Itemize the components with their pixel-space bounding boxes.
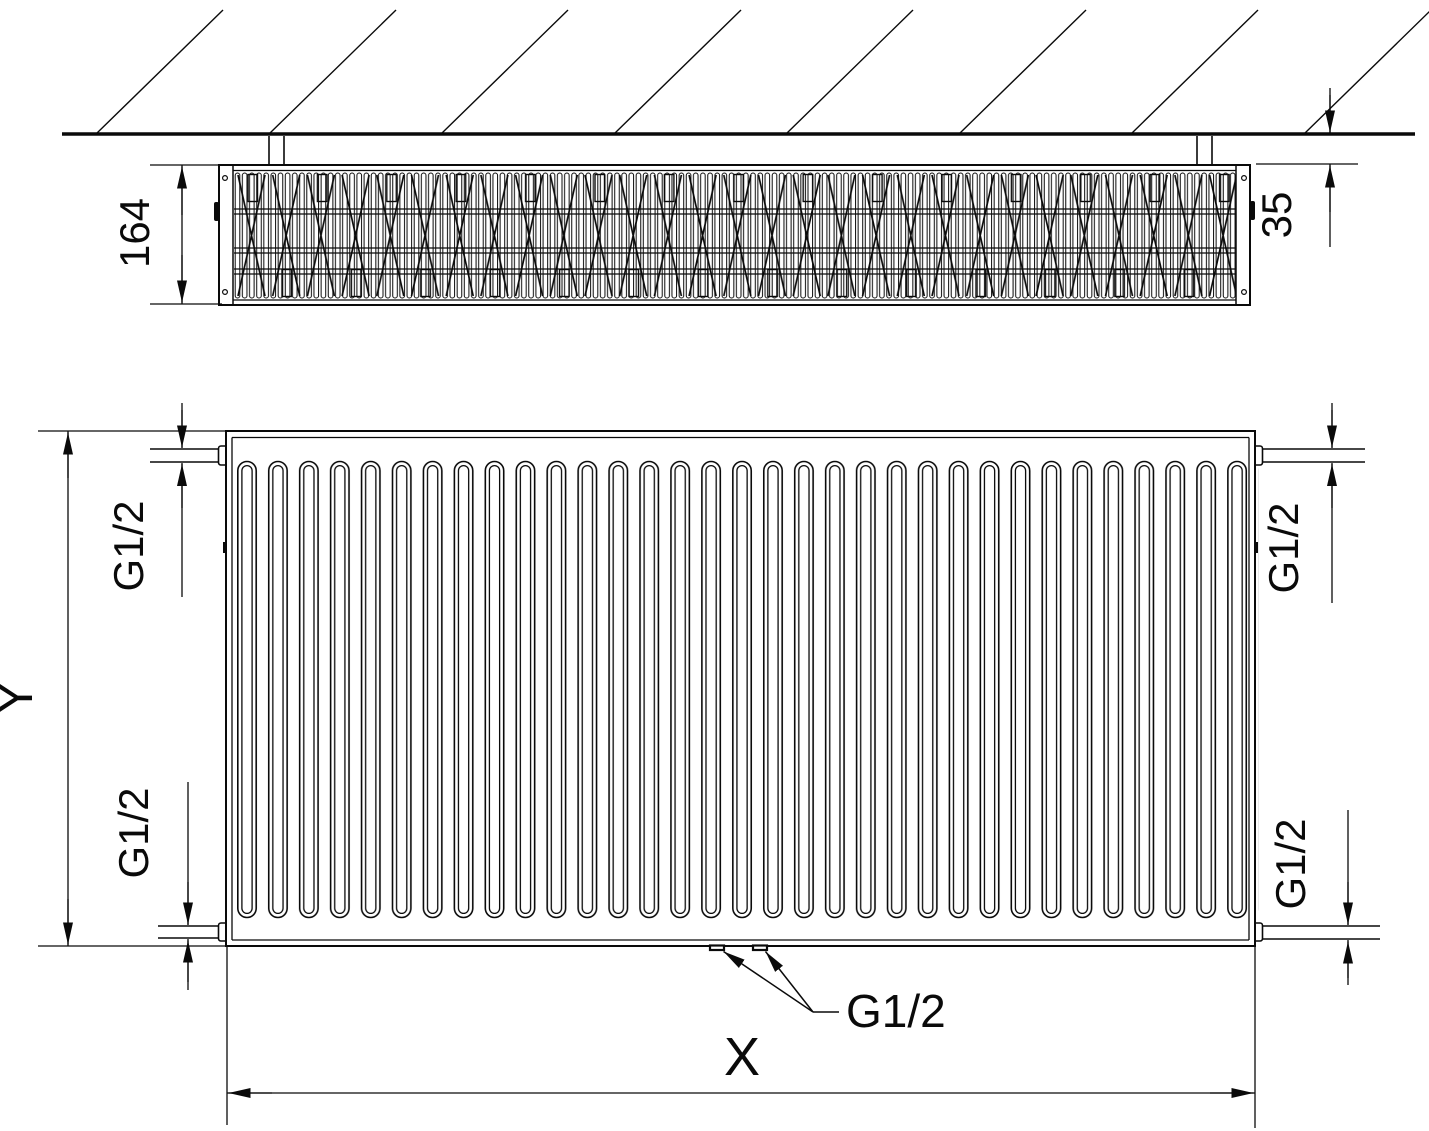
mounting-bracket-left [269, 136, 284, 165]
dim-label-164: 164 [111, 198, 158, 268]
radiator-top-view [214, 165, 1255, 305]
dim-label-conn-bottom-right: G1/2 [1267, 818, 1314, 909]
bottom-stub-1 [710, 946, 724, 951]
dim-label-width: X [724, 1027, 760, 1087]
screw-hole [1242, 290, 1247, 295]
groove-field [237, 460, 1258, 920]
pipe-stub-bottom-left [158, 923, 228, 941]
edge-tab-right [1254, 542, 1258, 553]
dim-label-conn-top-left: G1/2 [105, 500, 152, 591]
radiator-technical-drawing: 164 35 [0, 0, 1429, 1131]
dim-label-height: Y [0, 681, 43, 714]
dim-label-conn-bottom-left: G1/2 [110, 787, 157, 878]
pipe-stub-top-left [150, 446, 228, 465]
drawing-canvas: 164 35 [0, 0, 1429, 1131]
mounting-bracket-right [1197, 136, 1212, 165]
screw-hole [223, 290, 228, 295]
pipe-stub-top-right [1254, 446, 1366, 465]
dim-label-35: 35 [1253, 192, 1300, 239]
dim-depth-164 [150, 165, 222, 304]
edge-tab-left [223, 542, 227, 553]
dim-label-conn-bottom-center: G1/2 [846, 985, 946, 1037]
bottom-stub-2 [753, 946, 767, 951]
side-tab-left [214, 202, 219, 221]
screw-hole [223, 176, 228, 181]
radiator-front-view [150, 431, 1380, 950]
leader-bottom-connections [724, 952, 840, 1013]
wall-hatch [96, 10, 1429, 134]
screw-hole [1242, 176, 1247, 181]
dim-label-conn-top-right: G1/2 [1260, 502, 1307, 593]
pipe-stub-bottom-right [1254, 923, 1381, 941]
fin-pattern [234, 172, 1236, 299]
